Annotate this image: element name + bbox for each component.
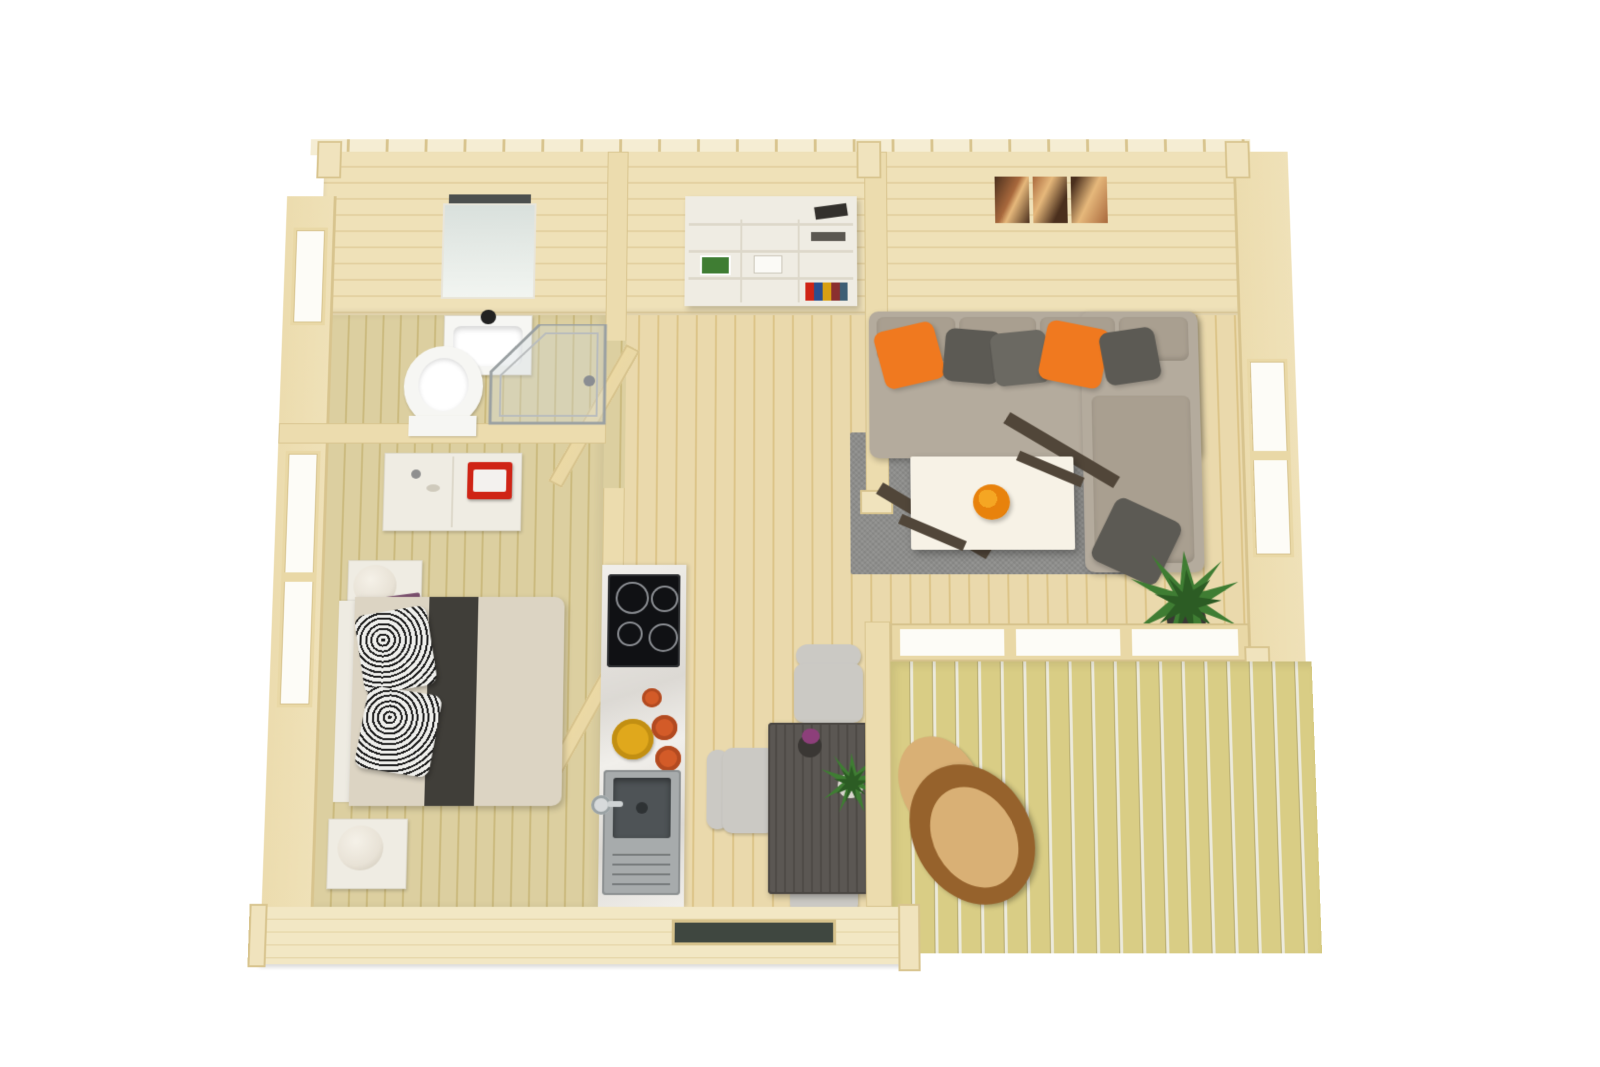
bottom-wall-mid-post <box>898 904 921 971</box>
hob-ring <box>615 582 649 614</box>
induction-hob <box>607 574 681 667</box>
grey-cushion <box>1098 326 1163 387</box>
hob-ring <box>651 586 679 612</box>
shelf-line <box>689 250 853 253</box>
perfume-bottle-icon <box>411 469 421 478</box>
patterned-pillow-2 <box>354 685 443 778</box>
bathroom-vent-icon <box>449 194 531 205</box>
dining-chair-left <box>706 744 776 837</box>
table-lamp-2 <box>337 825 384 870</box>
sink-drain-icon <box>636 802 648 814</box>
book-stack-icon <box>811 232 845 241</box>
corner-post-top-right <box>1225 141 1251 178</box>
glass-pane <box>1016 629 1121 656</box>
hob-ring <box>648 623 678 652</box>
terrace-side-wall <box>865 622 892 907</box>
toilet-seat <box>418 358 469 411</box>
bedroom-window-mullion <box>281 572 317 581</box>
yellow-bowl <box>612 719 654 759</box>
corner-post-top-mid <box>856 141 881 178</box>
bottom-wall-end-post <box>247 904 267 967</box>
kitchen-sink <box>602 770 681 895</box>
sink-drainboard <box>612 846 670 889</box>
toilet-cistern <box>408 416 476 436</box>
nightstand-bottom <box>326 819 408 889</box>
corner-shower <box>488 324 607 425</box>
trinket-icon <box>426 484 440 491</box>
washbasin-faucet-icon <box>481 310 497 325</box>
shelf-line <box>689 223 853 226</box>
flower-bouquet <box>973 484 1010 519</box>
glass-pane <box>900 629 1004 656</box>
hob-ring <box>617 622 643 647</box>
cabin-floor-plan <box>259 125 1322 967</box>
orange-cushion <box>1037 319 1111 391</box>
colorful-books-icon <box>805 283 847 301</box>
glass-pane <box>1132 629 1239 656</box>
wall-art-triptych <box>995 177 1108 223</box>
dresser-divider <box>451 457 455 528</box>
shelving-unit <box>684 196 857 306</box>
shelf-divider <box>798 219 800 302</box>
purple-flower-icon <box>802 729 820 744</box>
shelf-line <box>688 277 853 280</box>
bathroom-window <box>290 228 328 326</box>
sink-basin <box>613 778 671 838</box>
art-panel <box>1033 177 1068 223</box>
kitchen-slit-window <box>672 920 837 946</box>
book-stack-icon <box>814 203 848 220</box>
coffee-table <box>910 457 1075 550</box>
patterned-pillow-1 <box>354 605 438 696</box>
dining-chair-top <box>790 644 867 726</box>
dresser <box>382 453 522 531</box>
green-book-icon <box>700 255 731 275</box>
shelf-divider <box>740 219 742 302</box>
orange-cup <box>651 715 677 740</box>
living-window-mullion <box>1250 451 1291 460</box>
red-storage-box <box>467 462 512 499</box>
red-box-lid <box>473 469 507 491</box>
faucet-spout <box>607 801 623 807</box>
white-book-icon <box>754 255 783 273</box>
bathroom-mirror <box>443 205 535 297</box>
orange-cup <box>655 746 681 771</box>
art-panel <box>995 177 1030 223</box>
chair-seat <box>794 663 863 722</box>
art-panel <box>1071 177 1108 223</box>
orange-vase <box>642 688 662 707</box>
corner-post-top-left <box>316 141 342 178</box>
glass-wall-to-terrace <box>890 623 1250 661</box>
